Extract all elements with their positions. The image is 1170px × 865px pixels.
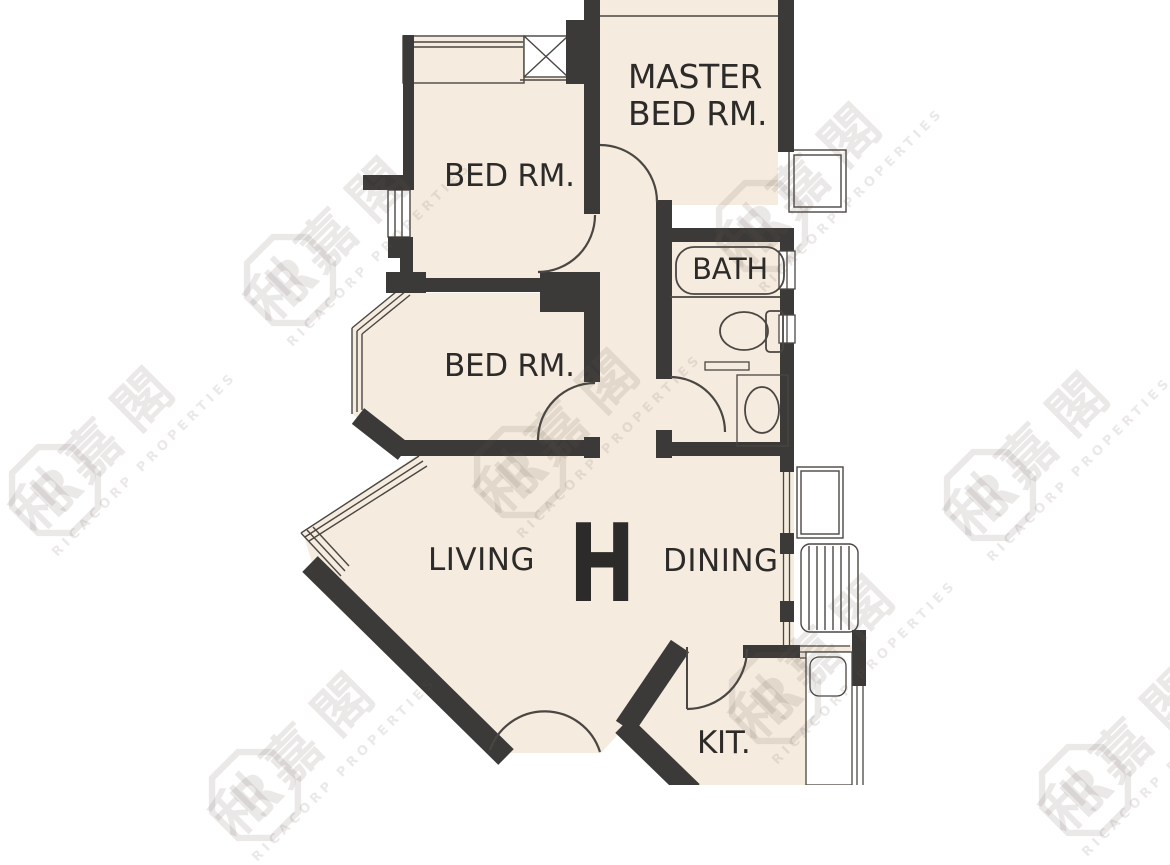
room-label-dining: DINING [663, 544, 779, 580]
room-label-bath: BATH [676, 253, 784, 286]
room-label-kitchen: KIT. [697, 726, 750, 762]
floorplan-drawing [0, 0, 1170, 785]
unit-letter-label: H [565, 510, 639, 620]
kitchen-sink [810, 657, 846, 696]
room-label-bedroom-top: BED RM. [444, 159, 575, 195]
room-label-bedroom-mid: BED RM. [444, 349, 575, 385]
room-label-living: LIVING [428, 543, 535, 579]
room-label-master-bedroom: MASTERBED RM. [628, 58, 767, 132]
floorplan: R 利嘉閣 RICACORP PROPERTIES R 利嘉閣 RICACORP… [0, 0, 1170, 785]
